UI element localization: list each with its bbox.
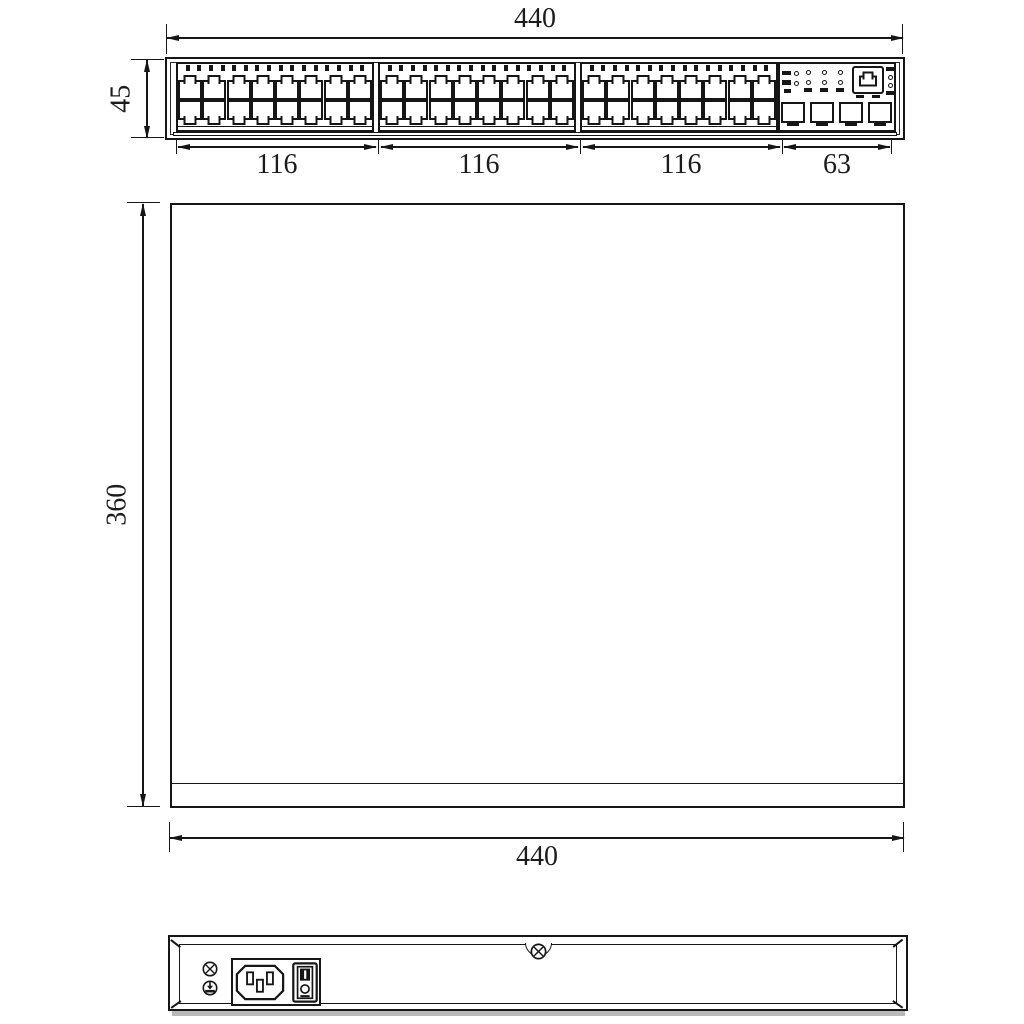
port-row-top xyxy=(582,73,776,100)
rj45-port-icon xyxy=(582,100,606,120)
status-led-icon xyxy=(838,80,843,85)
port-led-icon xyxy=(290,65,294,71)
sfp-cage-icon xyxy=(810,102,834,123)
port-block xyxy=(580,62,778,132)
port-led-icon xyxy=(457,65,461,71)
dimension-line-front-height xyxy=(146,60,148,138)
status-led-icon xyxy=(888,75,893,80)
arrowhead-icon xyxy=(582,144,595,150)
port-led-icon xyxy=(718,65,722,71)
port-led-icon xyxy=(671,65,675,71)
port-led-icon xyxy=(360,65,364,71)
port-led-icon xyxy=(562,65,566,71)
port-led-icon xyxy=(648,65,652,71)
port-row-bottom xyxy=(380,100,574,127)
rj45-port-icon xyxy=(251,80,275,100)
switch-dimension-drawing: 440 45 xyxy=(0,0,1024,1024)
ground-icon xyxy=(202,980,218,996)
arrowhead-icon xyxy=(144,59,150,72)
port-led-icon xyxy=(255,65,259,71)
rj45-port-icon xyxy=(477,100,501,120)
block-baseline xyxy=(582,126,776,128)
port-led-icon xyxy=(399,65,403,71)
port-led-icon xyxy=(636,65,640,71)
rj45-port-icon xyxy=(202,80,226,100)
port-led-icon xyxy=(729,65,733,71)
screw-icon xyxy=(202,961,218,977)
port-led-icon xyxy=(613,65,617,71)
rj45-port-icon xyxy=(703,80,727,100)
port-led-icon xyxy=(764,65,768,71)
arrowhead-icon xyxy=(166,35,179,41)
dimension-label-front-height: 45 xyxy=(106,69,135,129)
arrowhead-icon xyxy=(364,144,377,150)
sfp-cage-icon xyxy=(781,102,805,123)
rj45-port-icon xyxy=(324,80,348,100)
dimension-label-seg2: 116 xyxy=(419,150,539,179)
rj45-port-icon xyxy=(380,100,404,120)
rj45-port-icon xyxy=(404,100,428,120)
rj45-port-icon xyxy=(299,80,323,100)
rj45-port-icon xyxy=(453,80,477,100)
port-led-icon xyxy=(221,65,225,71)
port-block xyxy=(176,62,374,132)
rj45-port-icon xyxy=(679,80,703,100)
arrowhead-icon xyxy=(144,126,150,139)
sfp-cage-icon xyxy=(868,102,892,123)
power-module xyxy=(231,958,321,1006)
port-led-icon xyxy=(516,65,520,71)
port-block xyxy=(378,62,576,132)
chamfer-line xyxy=(893,1000,904,1008)
rj45-port-icon xyxy=(348,80,372,100)
status-led-icon xyxy=(794,81,799,86)
dimension-label-seg4: 63 xyxy=(787,150,887,179)
rj45-port-icon xyxy=(429,100,453,120)
port-led-icon xyxy=(302,65,306,71)
port-led-icon xyxy=(694,65,698,71)
led-label-icon xyxy=(820,88,828,92)
arrowhead-icon xyxy=(566,144,579,150)
control-section xyxy=(778,62,896,132)
sfp-foot xyxy=(874,123,886,126)
arrowhead-icon xyxy=(140,203,146,216)
rj45-port-icon xyxy=(275,80,299,100)
rear-panel-shadow xyxy=(172,1011,905,1016)
dimension-line-front-width xyxy=(167,37,903,39)
port-led-icon xyxy=(446,65,450,71)
rj45-port-icon xyxy=(178,80,202,100)
port-row-top xyxy=(380,73,574,100)
port-led-icon xyxy=(504,65,508,71)
port-led-icon xyxy=(244,65,248,71)
port-row-bottom xyxy=(582,100,776,127)
status-led-icon xyxy=(822,80,827,85)
rj45-port-icon xyxy=(550,80,574,100)
rj45-port-icon xyxy=(299,100,323,120)
rj45-port-icon xyxy=(526,100,550,120)
arrowhead-icon xyxy=(380,144,393,150)
arrowhead-icon xyxy=(140,794,146,807)
port-led-icon xyxy=(492,65,496,71)
arrowhead-icon xyxy=(783,144,796,150)
front-panel xyxy=(165,57,905,140)
port-led-strip xyxy=(582,64,776,73)
port-led-icon xyxy=(590,65,594,71)
led-label-icon xyxy=(836,88,844,92)
rj45-port-icon xyxy=(550,100,574,120)
status-led-icon xyxy=(888,83,893,88)
dimension-line-seg2 xyxy=(381,146,578,148)
sfp-foot xyxy=(816,123,828,126)
rj45-port-icon xyxy=(655,100,679,120)
sfp-foot xyxy=(845,123,857,126)
led-label-icon xyxy=(784,89,791,93)
rj45-console-icon xyxy=(859,76,877,87)
arrowhead-icon xyxy=(878,144,891,150)
dimension-line-seg3 xyxy=(583,146,780,148)
dimension-line-seg4 xyxy=(784,146,890,148)
port-led-icon xyxy=(423,65,427,71)
port-led-icon xyxy=(539,65,543,71)
port-led-icon xyxy=(314,65,318,71)
rj45-port-icon xyxy=(501,80,525,100)
sfp-cage-icon xyxy=(839,102,863,123)
port-led-icon xyxy=(279,65,283,71)
port-led-icon xyxy=(186,65,190,71)
port-led-icon xyxy=(434,65,438,71)
rj45-port-icon xyxy=(631,80,655,100)
status-led-icon xyxy=(794,71,799,76)
rj45-port-icon xyxy=(227,100,251,120)
port-led-strip xyxy=(380,64,574,73)
dimension-line-seg1 xyxy=(178,146,376,148)
led-label-icon xyxy=(886,67,894,71)
rj45-port-icon xyxy=(526,80,550,100)
port-led-icon xyxy=(337,65,341,71)
port-led-icon xyxy=(683,65,687,71)
led-label-icon xyxy=(782,71,791,75)
rj45-port-icon xyxy=(703,100,727,120)
rj45-port-icon xyxy=(275,100,299,120)
rear-panel xyxy=(168,935,908,1011)
arrowhead-icon xyxy=(891,35,904,41)
rj45-port-icon xyxy=(380,80,404,100)
rj45-port-icon xyxy=(348,100,372,120)
block-baseline xyxy=(380,126,574,128)
rj45-port-icon xyxy=(501,100,525,120)
rj45-port-icon xyxy=(178,100,202,120)
port-led-icon xyxy=(481,65,485,71)
rj45-port-icon xyxy=(752,100,776,120)
port-led-icon xyxy=(411,65,415,71)
ac-inlet-icon xyxy=(235,964,285,1001)
status-led-icon xyxy=(806,70,811,75)
status-led-icon xyxy=(838,70,843,75)
power-switch-icon xyxy=(292,962,318,1003)
port-led-icon xyxy=(197,65,201,71)
port-led-icon xyxy=(349,65,353,71)
dimension-line-top-depth xyxy=(142,204,144,806)
console-port xyxy=(852,66,884,94)
port-led-icon xyxy=(388,65,392,71)
led-label-icon xyxy=(804,88,812,92)
sfp-foot xyxy=(787,123,799,126)
top-view-outline xyxy=(170,203,905,808)
rj45-port-icon xyxy=(251,100,275,120)
port-led-icon xyxy=(551,65,555,71)
port-led-icon xyxy=(527,65,531,71)
port-led-icon xyxy=(601,65,605,71)
arrowhead-icon xyxy=(169,835,182,841)
rj45-port-icon xyxy=(202,100,226,120)
rj45-port-icon xyxy=(606,100,630,120)
console-foot xyxy=(872,95,880,98)
rj45-port-icon xyxy=(477,80,501,100)
rj45-port-icon xyxy=(679,100,703,120)
rj45-port-icon xyxy=(227,80,251,100)
top-view-front-edge-line xyxy=(172,783,903,784)
screw-icon xyxy=(530,943,547,960)
port-led-icon xyxy=(625,65,629,71)
dimension-label-top-depth: 360 xyxy=(102,475,131,535)
front-panel-bottom-strip xyxy=(173,132,897,137)
rj45-port-icon xyxy=(752,80,776,100)
port-led-icon xyxy=(267,65,271,71)
dimension-label-seg3: 116 xyxy=(621,150,741,179)
dimension-label-seg1: 116 xyxy=(217,150,337,179)
led-label-icon xyxy=(782,80,791,85)
block-baseline xyxy=(178,126,372,128)
arrowhead-icon xyxy=(177,144,190,150)
port-row-bottom xyxy=(178,100,372,127)
port-led-icon xyxy=(325,65,329,71)
arrowhead-icon xyxy=(892,835,905,841)
arrowhead-icon xyxy=(768,144,781,150)
dimension-label-front-width: 440 xyxy=(435,4,635,33)
console-foot xyxy=(856,95,864,98)
rj45-port-icon xyxy=(606,80,630,100)
port-led-icon xyxy=(753,65,757,71)
extension-line xyxy=(891,140,892,154)
status-led-icon xyxy=(822,70,827,75)
rj45-port-icon xyxy=(728,100,752,120)
rj45-port-icon xyxy=(404,80,428,100)
rj45-port-icon xyxy=(429,80,453,100)
port-led-strip xyxy=(178,64,372,73)
rj45-port-icon xyxy=(453,100,477,120)
dimension-line-top-width xyxy=(170,837,904,839)
port-led-icon xyxy=(469,65,473,71)
port-led-icon xyxy=(659,65,663,71)
rj45-port-icon xyxy=(728,80,752,100)
rj45-port-icon xyxy=(631,100,655,120)
port-led-icon xyxy=(209,65,213,71)
rj45-port-icon xyxy=(655,80,679,100)
port-led-icon xyxy=(232,65,236,71)
port-led-icon xyxy=(706,65,710,71)
port-led-icon xyxy=(741,65,745,71)
dimension-label-top-width: 440 xyxy=(437,842,637,871)
rj45-port-icon xyxy=(324,100,348,120)
port-row-top xyxy=(178,73,372,100)
status-led-icon xyxy=(806,80,811,85)
chamfer-line xyxy=(171,1000,182,1008)
led-label-icon xyxy=(886,91,894,95)
rj45-port-icon xyxy=(582,80,606,100)
